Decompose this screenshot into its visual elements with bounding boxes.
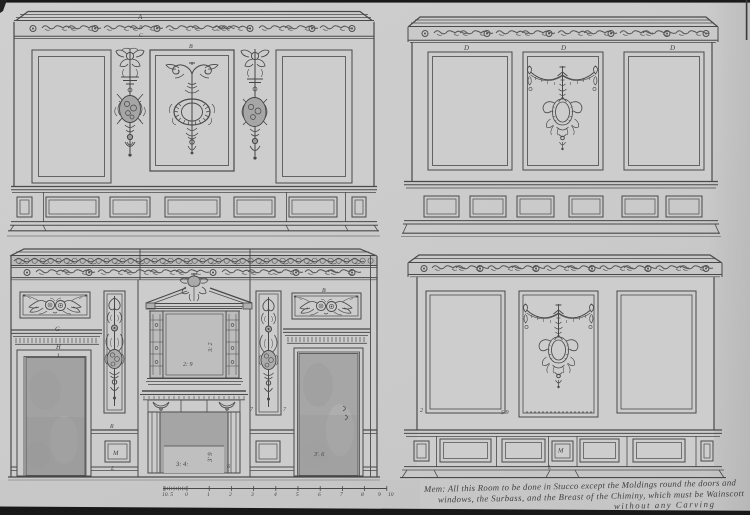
svg-text:3' 9: 3' 9 bbox=[207, 452, 214, 463]
svg-text:2: 9: 2: 9 bbox=[183, 362, 193, 368]
svg-text:M: M bbox=[557, 448, 564, 455]
svg-text:D: D bbox=[463, 44, 469, 52]
svg-text:A: A bbox=[137, 13, 143, 21]
svg-text:D: D bbox=[669, 44, 675, 52]
svg-text:4: 4 bbox=[274, 492, 277, 498]
svg-text:9: 9 bbox=[378, 492, 381, 498]
svg-text:3'. 6: 3'. 6 bbox=[313, 452, 324, 458]
svg-text:10: 10 bbox=[388, 492, 394, 498]
svg-text:without any Carving: without any Carving bbox=[614, 499, 715, 511]
svg-text:C: C bbox=[139, 33, 143, 39]
svg-text:B: B bbox=[189, 44, 193, 50]
svg-text:M: M bbox=[112, 450, 119, 457]
svg-text:G: G bbox=[55, 326, 60, 333]
svg-text:7: 7 bbox=[340, 492, 343, 498]
svg-text:2: 2 bbox=[229, 492, 232, 498]
svg-text:2: 2 bbox=[420, 408, 423, 414]
svg-text:5: 5 bbox=[296, 492, 299, 498]
svg-text:D: D bbox=[560, 44, 566, 52]
svg-text:3: 3 bbox=[250, 492, 254, 498]
svg-text:10. 5: 10. 5 bbox=[162, 492, 173, 498]
svg-text:R: R bbox=[109, 424, 114, 430]
svg-text:6: 6 bbox=[227, 464, 230, 470]
svg-text:3: 2: 3: 2 bbox=[208, 343, 214, 354]
svg-text:1: 1 bbox=[207, 492, 210, 498]
svg-text:3: 4:: 3: 4: bbox=[175, 461, 188, 468]
svg-text:5 9: 5 9 bbox=[501, 410, 509, 416]
svg-text:8: 8 bbox=[361, 492, 364, 498]
svg-text:6: 6 bbox=[318, 492, 321, 498]
svg-text:0: 0 bbox=[185, 492, 188, 498]
svg-text:L: L bbox=[547, 465, 552, 471]
svg-text:B: B bbox=[322, 288, 326, 294]
